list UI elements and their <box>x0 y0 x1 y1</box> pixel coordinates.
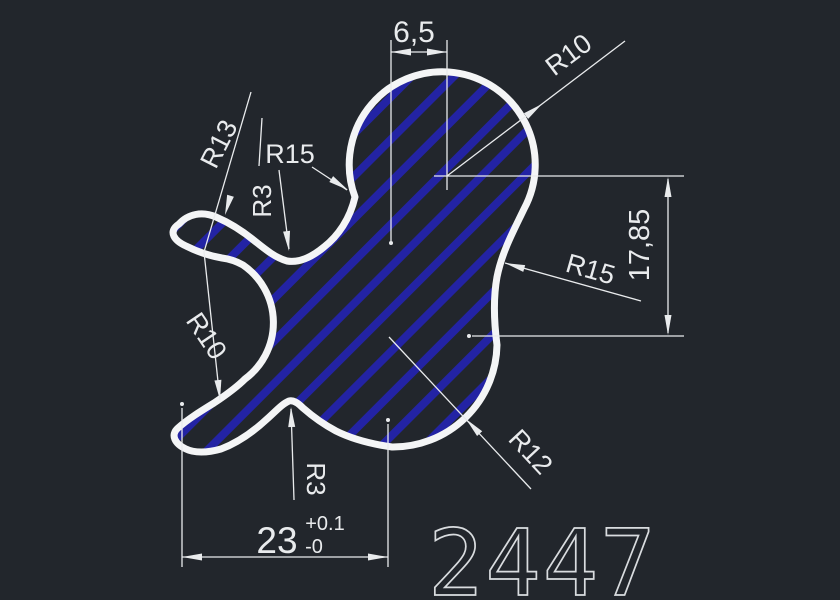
leader-r15-left-label: R15 <box>265 139 315 169</box>
leader-r10-top-label: R10 <box>540 28 598 82</box>
divider-line <box>259 118 262 166</box>
leader-r15-right: R15 <box>504 248 641 301</box>
leader-r10-left-label: R10 <box>180 307 233 365</box>
leader-r3-bottom-label: R3 <box>301 462 331 495</box>
arrowhead <box>182 554 202 561</box>
arrowhead <box>665 177 672 197</box>
extension-end-dot <box>386 418 390 422</box>
dim-bottom-width-label: 23 <box>256 520 297 561</box>
leader-r15-left: R15 <box>259 118 350 193</box>
arrowhead <box>391 49 411 56</box>
dim-right-height-label: 17,85 <box>624 209 656 282</box>
extension-end-dot <box>389 241 393 245</box>
arrowhead <box>368 554 388 561</box>
arrowhead <box>665 315 672 335</box>
arrowhead <box>427 49 447 56</box>
leader-r10-left: R10 <box>180 252 233 400</box>
dim-top-width-label: 6,5 <box>393 16 435 49</box>
cad-drawing-canvas[interactable]: 6,5 17,85 R10 R13 R15 R3 <box>0 0 840 600</box>
cad-window: 6,5 17,85 R10 R13 R15 R3 <box>0 0 840 600</box>
dim-bottom-width-tol-lower: -0 <box>305 536 323 558</box>
arrowhead <box>222 195 234 216</box>
arrowhead <box>288 407 296 427</box>
part-number: 2447 <box>428 510 658 600</box>
extension-end-dot <box>467 334 471 338</box>
leader-r15-right-label: R15 <box>563 248 619 290</box>
leader-r12-label: R12 <box>503 424 559 481</box>
dim-bottom-width-tol-upper: +0.1 <box>305 513 344 535</box>
arrowhead <box>283 231 292 252</box>
arrowhead <box>504 260 525 272</box>
leader-r3-top-label: R3 <box>247 184 277 217</box>
extension-end-dot <box>180 402 184 406</box>
